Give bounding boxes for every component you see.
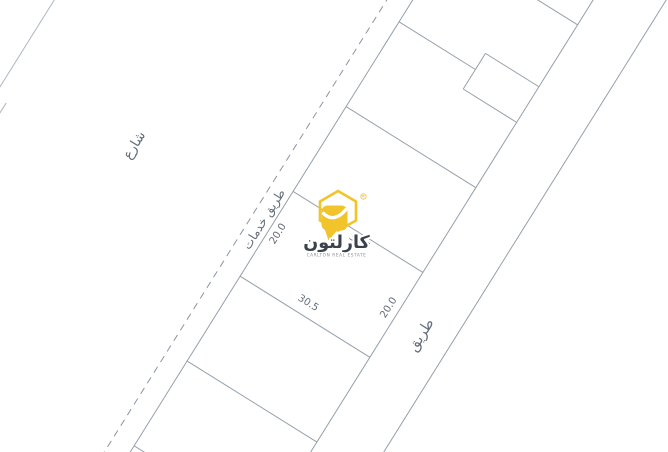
plot-depth-dimension-south: 30.5 [296,293,321,314]
plot-width-dimension-west: 20.0 [268,222,289,247]
main-road-east-edge [382,0,668,452]
plot-boundary-line [293,191,423,272]
carlton-wordmark-arabic: كارلتون [303,233,370,253]
site-plan-drawing: شارع طريق خدمات طريق 20.0 20.0 30.5 30.5… [0,0,668,452]
service-road-label: طريق خدمات [240,186,289,252]
plot-boundary-line [399,22,475,70]
plot-boundary-line [448,0,578,25]
carlton-tagline-english: CARLTON REAL ESTATE [307,253,367,259]
plot-width-dimension-east: 20.0 [378,296,399,321]
carlton-logo: R كارلتون CARLTON REAL ESTATE [303,191,370,259]
main-road-west-edge [309,0,595,452]
plot-boundary-line [134,446,264,452]
service-road-solid-edge [128,0,414,452]
plot-boundary-line [346,107,476,188]
cadastral-plot-map: شارع طريق خدمات طريق 20.0 20.0 30.5 30.5… [0,0,668,452]
street-edge-tick [0,103,6,113]
street-corner-boundary-line [0,0,58,88]
main-road-label: طريق [405,316,437,355]
notched-parcel-outline [463,53,539,122]
plot-boundary-line [187,361,317,442]
plot-boundary-line [240,276,370,357]
street-label: شارع [120,128,149,162]
